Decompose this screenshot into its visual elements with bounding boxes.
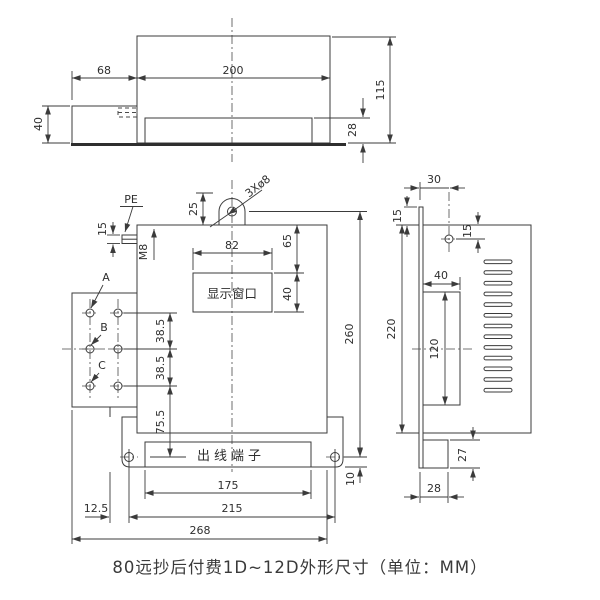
side-top-hole [441, 192, 457, 252]
side-body-outline [423, 225, 531, 433]
phase-label-a: A [91, 271, 110, 308]
top-view-cover-outline [137, 36, 330, 143]
top-view-left-extension [72, 106, 137, 143]
phase-label-b: B [91, 321, 108, 345]
dim-front-25: 25 [187, 193, 213, 225]
side-view: 30 15 15 220 40 1 [385, 173, 531, 503]
dim-value: 38.5 [154, 319, 167, 344]
dim-front-75-5: 75.5 [150, 386, 186, 457]
outlet-terminal-label: 出线端子 [197, 449, 265, 464]
dim-value: 215 [222, 502, 243, 515]
dim-value: 40 [32, 117, 45, 131]
dim-side-220: 220 [385, 225, 419, 433]
side-terminal-foot [423, 440, 448, 468]
dim-side-120: 120 [428, 292, 445, 405]
dim-value: 27 [456, 448, 469, 462]
dim-value: 175 [218, 479, 239, 492]
top-view-hidden-screw [118, 108, 137, 117]
dim-front-38-5-b: 38.5 [124, 349, 177, 386]
dim-value: 28 [346, 123, 359, 137]
top-view: 68 200 115 28 40 [32, 18, 396, 163]
dim-value: 28 [427, 482, 441, 495]
dim-front-65: 65 [274, 225, 304, 273]
front-view: 3Xø8 25 PE 15 M8 显示窗口 [62, 172, 367, 544]
svg-text:A: A [102, 271, 110, 284]
dim-value: 75.5 [154, 410, 167, 435]
dim-side-15-hole: 15 [456, 212, 485, 253]
dim-value: 10 [344, 472, 357, 486]
dim-value: 260 [343, 324, 356, 345]
dim-value: 15 [391, 209, 404, 223]
hole-spec-label: 3Xø8 [243, 172, 273, 200]
display-window-label: 显示窗口 [207, 286, 257, 301]
dim-side-15-top: 15 [391, 196, 419, 237]
dim-side-40: 40 [423, 269, 460, 290]
dim-front-175: 175 [145, 470, 311, 499]
dim-side-30: 30 [404, 173, 465, 200]
dim-value: 30 [427, 173, 441, 186]
side-mounting-plate [419, 207, 423, 468]
top-view-front-panel [145, 118, 312, 143]
pe-text: PE [124, 193, 138, 206]
dim-front-82: 82 [193, 239, 272, 270]
dim-value: 15 [96, 222, 109, 236]
dim-value: 82 [225, 239, 239, 252]
dim-value: 65 [281, 234, 294, 248]
dim-front-15-pe: 15 [96, 222, 120, 257]
dim-top-40: 40 [32, 106, 70, 143]
dim-top-28: 28 [314, 98, 370, 163]
dim-value: 12.5 [84, 502, 109, 515]
pe-terminal [122, 235, 137, 244]
dim-value: 25 [187, 202, 200, 216]
phase-label-c: C [91, 359, 106, 382]
dim-top-200: 200 [137, 64, 330, 78]
dim-front-215: 215 [129, 502, 335, 517]
dim-value: 15 [461, 224, 474, 238]
dim-value: 268 [190, 524, 211, 537]
dim-value: 38.5 [154, 356, 167, 381]
phase-terminal-block [72, 293, 137, 407]
dim-value: 200 [223, 64, 244, 77]
dim-side-27: 27 [450, 427, 480, 481]
pe-label: PE [120, 193, 143, 232]
dim-value: 115 [374, 80, 387, 101]
dim-value: 68 [97, 64, 111, 77]
dim-value: 220 [385, 319, 398, 340]
m8-label: M8 [137, 229, 154, 260]
technical-drawing-canvas: 68 200 115 28 40 [0, 0, 600, 600]
dim-value: 40 [434, 269, 448, 282]
dim-top-68: 68 [72, 64, 137, 100]
m8-text: M8 [137, 244, 150, 261]
dim-side-28: 28 [404, 472, 464, 503]
dim-front-38-5-a: 38.5 [124, 313, 177, 349]
drawing-caption: 80远抄后付费1D~12D外形尺寸（单位：MM） [0, 554, 600, 578]
dim-front-260: 260 [249, 212, 367, 458]
dim-value: 40 [281, 287, 294, 301]
dim-front-10: 10 [344, 441, 367, 486]
dim-top-115: 115 [332, 37, 396, 143]
svg-text:B: B [100, 321, 108, 334]
svg-text:C: C [98, 359, 106, 372]
ventilation-slots [484, 260, 512, 392]
dim-front-40: 40 [274, 273, 304, 312]
engineering-drawing-page: 68 200 115 28 40 [0, 0, 600, 600]
dim-front-12-5: 12.5 [84, 472, 110, 523]
